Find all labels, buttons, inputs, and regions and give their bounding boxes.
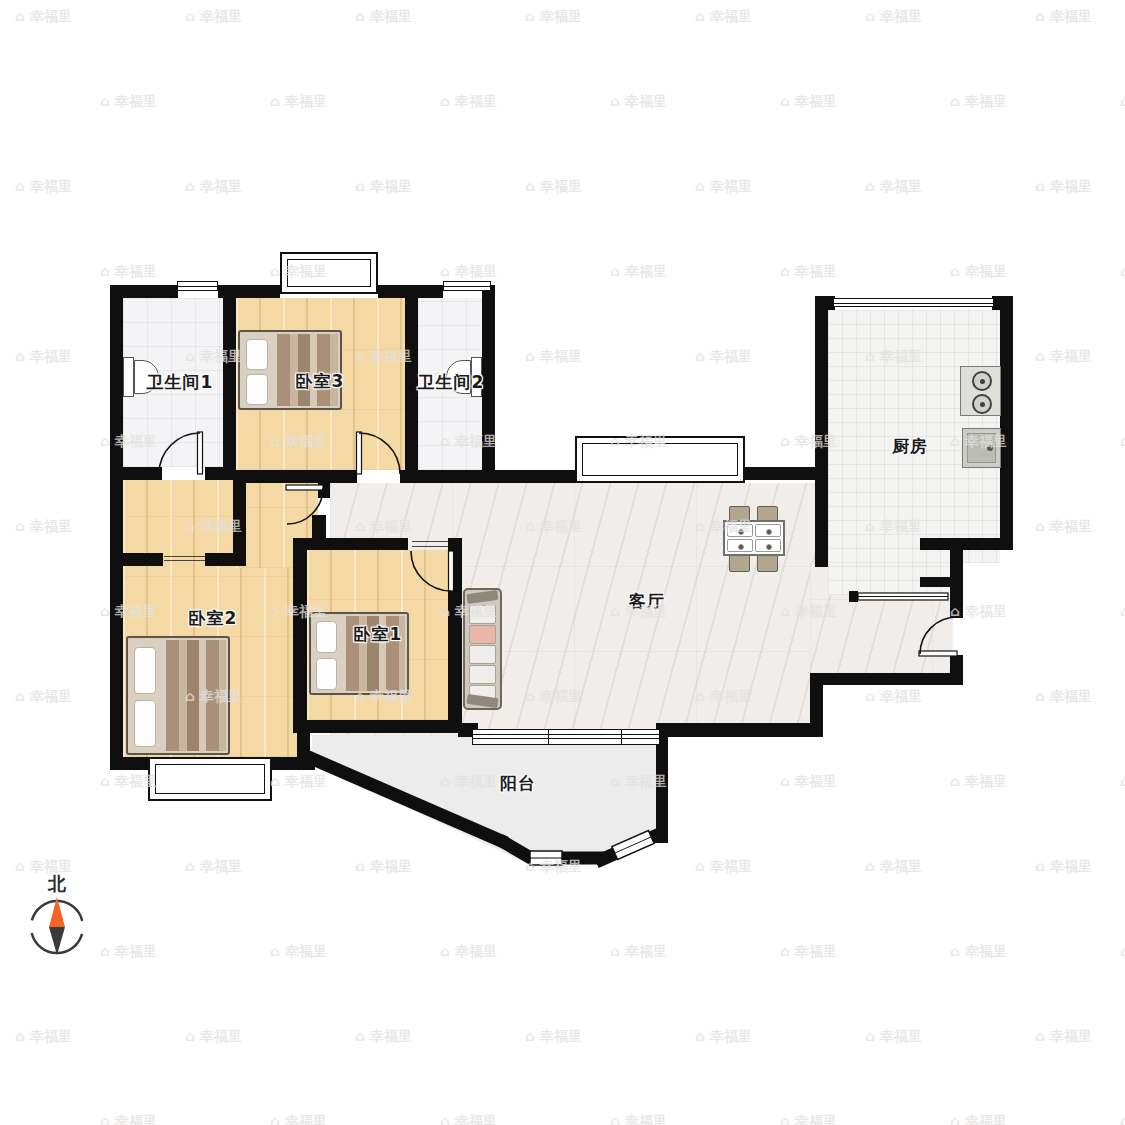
room-label-balcony: 阳台 — [500, 772, 536, 795]
room-label-bedroom3: 卧室3 — [296, 370, 345, 393]
entrance-door — [919, 617, 957, 656]
bedroom3-door — [357, 432, 401, 474]
room-label-bedroom2: 卧室2 — [189, 607, 238, 630]
room-label-kitchen: 厨房 — [892, 435, 928, 458]
room-label-bathroom2: 卫生间2 — [418, 371, 485, 394]
room-label-bedroom1: 卧室1 — [354, 623, 403, 646]
room-label-living-room: 客厅 — [629, 590, 665, 613]
bathroom1-door — [159, 432, 203, 474]
floor-plan-canvas: 卫生间1 卧室3 卫生间2 厨房 卧室2 卧室1 客厅 阳台 北 ⌂ 幸福里⌂ … — [0, 0, 1125, 1125]
bedroom1-door — [411, 551, 454, 591]
doors-layer — [0, 0, 1125, 1125]
compass-north-label: 北 — [48, 872, 66, 896]
room-label-bathroom1: 卫生间1 — [147, 371, 214, 394]
kitchen-sliding-door — [849, 591, 948, 602]
compass-icon — [25, 893, 89, 957]
bedroom2-door — [286, 485, 323, 524]
compass-needle-south — [49, 927, 65, 955]
